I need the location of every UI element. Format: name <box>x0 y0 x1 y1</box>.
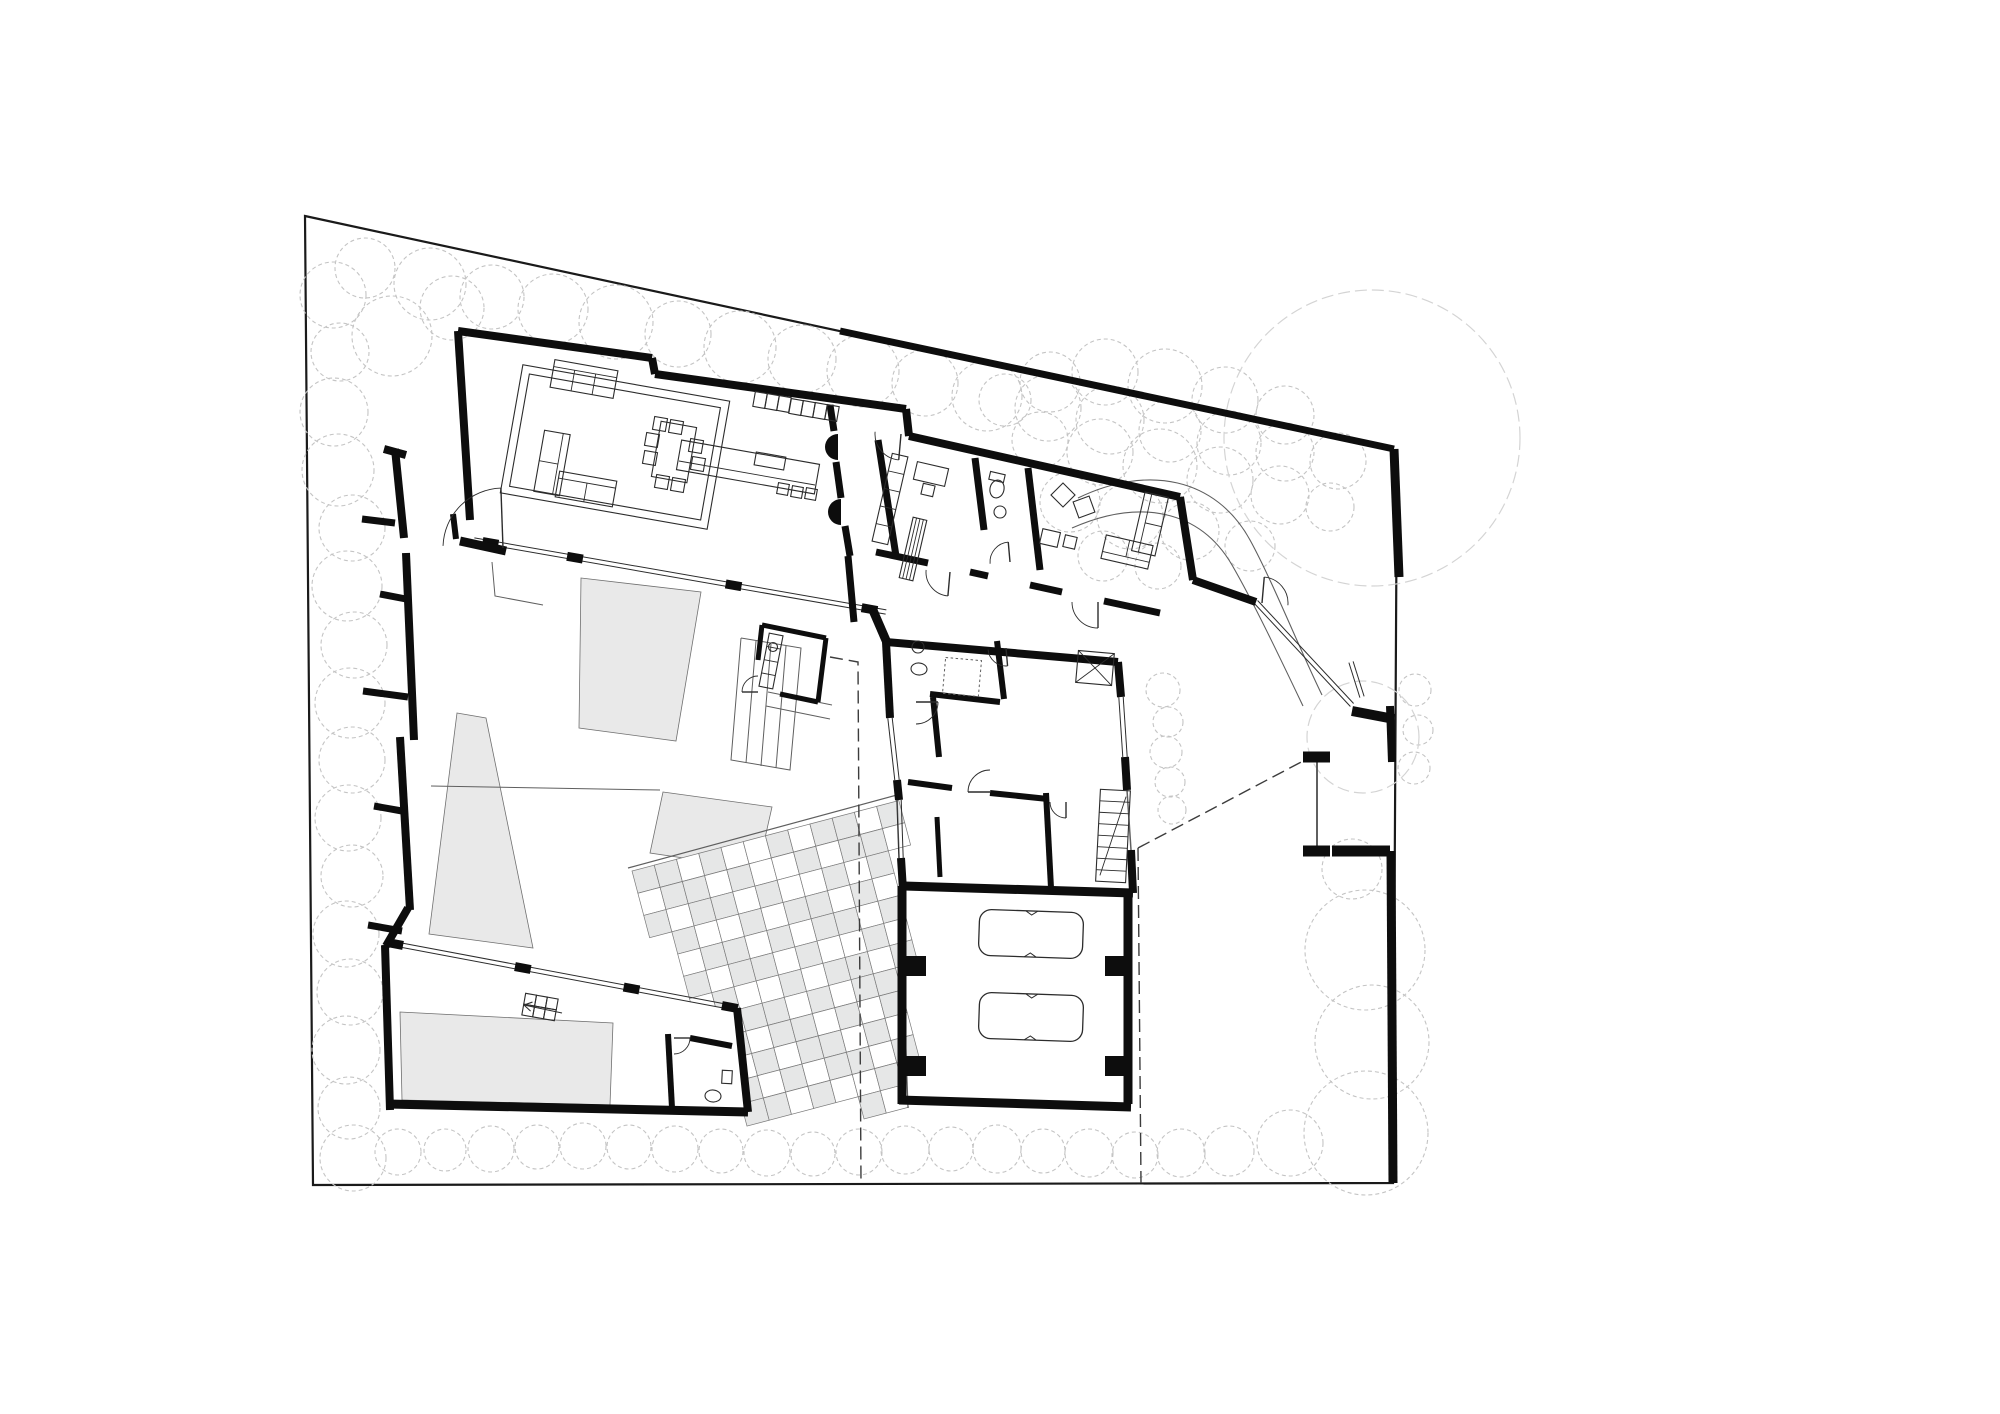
tree <box>1304 1071 1428 1195</box>
furniture-rect <box>754 452 786 470</box>
tree <box>394 248 466 320</box>
window-e1 <box>1123 697 1127 757</box>
wall <box>836 462 841 498</box>
furniture-rect <box>654 474 669 489</box>
wall <box>970 572 988 576</box>
door-swing-arc <box>1072 602 1098 628</box>
wall <box>908 782 952 788</box>
stair-tread <box>1097 847 1127 849</box>
door-swing-arc <box>1264 577 1288 605</box>
glazing-mullion <box>515 967 531 970</box>
stair-cut-line <box>1100 795 1126 876</box>
wall <box>840 331 1394 449</box>
furniture-rect <box>805 488 818 501</box>
wall <box>380 594 406 599</box>
tree <box>1257 1110 1323 1176</box>
wall <box>897 780 899 800</box>
southwest-bath-floor <box>668 1040 730 1110</box>
stair-tread <box>1099 824 1129 826</box>
sofa-seat-divider <box>584 483 587 502</box>
wall <box>758 625 762 660</box>
tree <box>302 434 374 506</box>
door-swing-arc <box>990 542 1008 564</box>
wall <box>1394 449 1399 577</box>
tree <box>1225 521 1275 571</box>
tree <box>1065 1129 1113 1177</box>
tree <box>318 1077 380 1139</box>
pool-strip <box>429 713 533 948</box>
wall <box>845 526 850 556</box>
car <box>978 909 1084 959</box>
terrace-upper <box>579 578 701 741</box>
wall <box>458 331 470 520</box>
tree <box>1112 1132 1158 1178</box>
sofa-seat-divider <box>1145 523 1162 527</box>
sofa-seat-divider <box>539 461 558 464</box>
tree <box>1128 349 1202 423</box>
tree <box>1015 375 1081 441</box>
wall <box>655 374 906 409</box>
furniture-rect <box>676 440 819 494</box>
furniture-rect <box>989 471 1005 482</box>
furniture-rect <box>670 477 685 492</box>
door-swing-arc <box>968 770 990 792</box>
tree <box>1315 985 1429 1099</box>
tree <box>929 1127 973 1171</box>
stair-tread <box>1096 870 1126 872</box>
wall <box>901 858 903 890</box>
tree <box>744 1130 790 1176</box>
window-e2 <box>1349 663 1360 698</box>
furniture-rect <box>1073 496 1095 518</box>
tree <box>1256 386 1314 444</box>
wall <box>1046 793 1051 888</box>
furniture-rect <box>668 419 683 434</box>
stair-tread <box>1097 858 1127 860</box>
door-swing-arc <box>926 570 948 596</box>
tree <box>1155 767 1185 797</box>
wall <box>886 642 890 718</box>
wall <box>878 440 896 556</box>
tree <box>375 1129 421 1175</box>
stair-tread <box>1099 812 1129 814</box>
car <box>978 992 1084 1042</box>
wall <box>668 1034 672 1108</box>
window-e1 <box>1119 697 1123 757</box>
tree <box>560 1123 606 1169</box>
wall <box>975 458 984 530</box>
wall <box>362 519 395 523</box>
wall <box>909 436 1180 497</box>
tree-canopy <box>1224 290 1520 586</box>
tree <box>313 901 379 967</box>
wall <box>904 886 1133 893</box>
shelf <box>899 517 927 581</box>
wall <box>848 556 854 622</box>
tree <box>311 323 369 381</box>
tree <box>1305 890 1425 1010</box>
tree <box>424 1129 466 1171</box>
wall <box>458 331 652 358</box>
door-leaf <box>899 434 901 460</box>
tree <box>312 1016 380 1084</box>
tree <box>1204 1126 1254 1176</box>
sofa <box>534 430 570 496</box>
tree <box>315 785 381 851</box>
tree <box>1158 796 1186 824</box>
door-leaf <box>1008 542 1010 562</box>
wall <box>1180 497 1193 580</box>
wall <box>830 405 834 431</box>
tree <box>460 265 524 329</box>
wall <box>363 691 408 697</box>
furniture-rect <box>654 474 669 489</box>
furniture-rect <box>688 438 703 453</box>
tree <box>1150 736 1182 768</box>
furniture-rect <box>913 462 948 487</box>
tree <box>1021 1129 1065 1173</box>
pivot-door <box>825 434 838 460</box>
wall <box>400 737 410 910</box>
furniture-rect <box>644 432 659 447</box>
glazing-mullion <box>567 556 583 559</box>
staircase <box>1096 789 1131 882</box>
tree-canopy <box>1307 681 1419 793</box>
tree <box>704 311 776 383</box>
tree <box>699 1129 743 1173</box>
studio-floor <box>400 1012 613 1105</box>
wall <box>876 552 928 563</box>
furniture-rect <box>670 477 685 492</box>
thin-line <box>761 644 771 766</box>
door-swing-arc <box>742 676 758 692</box>
wall <box>818 638 826 702</box>
sofa <box>555 471 617 507</box>
wall <box>1391 851 1393 1183</box>
wall <box>453 514 456 539</box>
glazing-mullion <box>624 987 640 990</box>
wall <box>906 409 909 436</box>
furniture-rect <box>921 483 935 496</box>
furniture-rect <box>989 471 1005 482</box>
furniture-line <box>679 461 815 485</box>
thin-line <box>746 641 756 763</box>
tree <box>645 301 711 367</box>
tree <box>319 727 385 793</box>
wall <box>374 806 402 811</box>
furniture-rect <box>921 483 935 496</box>
furniture-rect <box>805 488 818 501</box>
dashed-setback-line <box>1138 760 1305 848</box>
fixture-circle <box>994 506 1006 518</box>
corridor-east-glass <box>1258 601 1354 704</box>
furniture-rect <box>754 452 786 470</box>
glazing-mullion <box>722 1006 738 1009</box>
floor-plan-drawing <box>0 0 2000 1414</box>
tree <box>952 361 1022 431</box>
furniture-rect <box>644 432 659 447</box>
door-leaf <box>948 572 950 596</box>
tree <box>300 378 368 446</box>
tree <box>881 1126 929 1174</box>
furniture-rect <box>1051 483 1075 507</box>
wall <box>385 945 390 1110</box>
tree <box>1146 673 1180 707</box>
wall <box>652 358 655 374</box>
tree <box>652 1126 698 1172</box>
shelf-divider <box>888 471 904 475</box>
tree <box>317 959 383 1025</box>
tree <box>518 274 588 344</box>
toilet <box>911 662 928 675</box>
tree <box>468 1126 514 1172</box>
tree <box>1157 1129 1205 1177</box>
tree <box>335 238 395 298</box>
shelf-divider <box>909 520 923 580</box>
furniture-rect <box>642 450 657 465</box>
tree <box>312 551 382 621</box>
ground-surfaces-layer <box>390 578 919 1126</box>
tree <box>315 668 385 738</box>
site-plan-page <box>0 0 2000 1414</box>
stair-tread <box>1100 801 1130 803</box>
tree <box>1399 674 1431 706</box>
wall <box>937 817 940 877</box>
tree <box>1153 707 1183 737</box>
furniture-rect <box>1073 496 1095 518</box>
tree <box>1398 752 1430 784</box>
corridor-east-glass <box>1254 604 1350 707</box>
furniture-rect <box>1040 529 1061 548</box>
wall <box>1390 706 1392 762</box>
door-swing-arc <box>1050 802 1066 818</box>
shelf-divider <box>764 660 778 663</box>
tree <box>1251 466 1309 524</box>
furniture-rect <box>688 438 703 453</box>
car-body <box>978 992 1084 1042</box>
wall <box>899 1100 1131 1107</box>
door-leaf <box>501 488 503 548</box>
furniture-rect <box>676 440 819 494</box>
wall <box>1028 468 1040 570</box>
sofa <box>1132 492 1169 556</box>
glazing-mullion <box>726 584 742 587</box>
furniture-rect <box>1063 535 1077 549</box>
tree <box>768 325 836 393</box>
tree <box>321 845 383 907</box>
furniture-rect <box>1063 535 1077 549</box>
tree <box>973 1125 1021 1173</box>
wall <box>395 449 404 538</box>
wall <box>780 694 818 702</box>
car-body <box>978 909 1084 959</box>
tree <box>791 1132 835 1176</box>
furniture-rect <box>642 450 657 465</box>
wall <box>1118 662 1121 697</box>
wall <box>1125 757 1127 790</box>
shower-outline <box>942 657 981 696</box>
window-e2 <box>1353 661 1364 696</box>
thin-line <box>766 706 830 719</box>
furniture-rect <box>1051 483 1075 507</box>
wall <box>406 553 414 740</box>
thin-line <box>492 562 543 605</box>
tree <box>836 1129 882 1175</box>
door-leaf <box>1262 577 1264 603</box>
tree <box>607 1125 651 1169</box>
toilet-bowl <box>911 662 928 675</box>
shower <box>942 657 981 696</box>
furniture-rect <box>668 419 683 434</box>
pivot-door <box>828 499 841 525</box>
furniture-rect <box>913 462 948 487</box>
wall <box>1104 601 1160 613</box>
tree <box>515 1125 559 1169</box>
wall <box>1030 585 1062 592</box>
wall <box>1131 850 1133 893</box>
shelf-divider <box>903 518 917 578</box>
wall <box>762 625 826 638</box>
wall <box>990 793 1048 799</box>
tree <box>1306 483 1354 531</box>
shelf-divider <box>906 519 920 579</box>
sofa <box>1101 535 1153 569</box>
furniture-rect <box>1040 529 1061 548</box>
tree <box>1135 543 1181 589</box>
